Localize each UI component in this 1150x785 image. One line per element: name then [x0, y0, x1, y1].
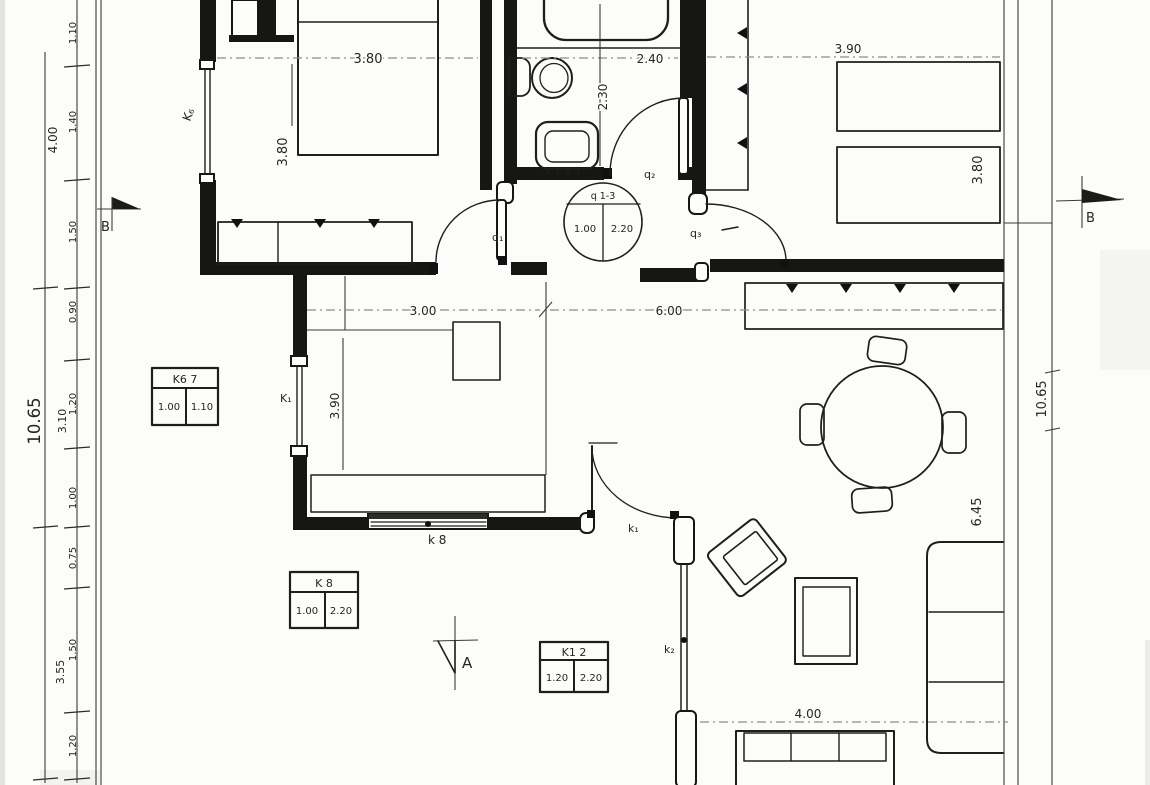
dim-label: 1.20 — [68, 735, 79, 757]
window-k6 — [200, 60, 214, 183]
table-width: 1.20 — [546, 673, 568, 684]
section-flag — [112, 197, 140, 209]
bathroom-width: 2.40 — [637, 52, 664, 66]
bathroom-height: 2.30 — [596, 84, 610, 111]
left-dimension-lines: 1.10 1.40 1.50 0.90 1.20 1.00 0.75 1.50 … — [25, 0, 141, 785]
section-flag — [1082, 189, 1122, 203]
section-letter: B — [101, 220, 110, 235]
sofa-wall-dim: 4.00 — [795, 707, 822, 721]
bedroom2-height: 3.80 — [971, 156, 986, 185]
wall-stub-top — [229, 0, 294, 42]
door-schedule-header: q 1-3 — [591, 191, 616, 202]
section-letter: A — [462, 654, 473, 672]
kitchen: K₁ k 8 3.90 — [280, 276, 594, 547]
door-schedule-height: 2.20 — [611, 224, 633, 235]
appliance — [453, 322, 500, 380]
dim-label: 1.00 — [68, 487, 79, 509]
bed-2a — [837, 62, 1000, 131]
window-k8: k 8 — [368, 514, 488, 547]
schedule-table-k8: K 8 1.00 2.20 — [290, 572, 358, 628]
floor-plan-sheet: 1.10 1.40 1.50 0.90 1.20 1.00 0.75 1.50 … — [0, 0, 1150, 785]
door-k1-swing — [592, 447, 678, 518]
door-k1-label: k₁ — [628, 522, 639, 535]
section-marker-b-left: B — [97, 197, 141, 235]
bedroom-1: K₆ 3.80 3.80 q₁ — [180, 0, 513, 274]
sofa-right-wall — [927, 542, 1003, 753]
left-chain-labels: 1.10 1.40 1.50 0.90 1.20 1.00 0.75 1.50 … — [25, 22, 79, 757]
window-k2: k₂ — [664, 564, 687, 711]
chair — [851, 487, 893, 514]
kitchen-height: 3.90 — [328, 393, 342, 420]
section-letter: B — [1086, 211, 1095, 226]
dim-label: 1.50 — [68, 639, 79, 661]
door-q3-label: q₃ — [690, 227, 701, 240]
dim-subtotal: 3.10 — [56, 409, 69, 434]
living-width: 6.00 — [656, 304, 683, 318]
balcony-opening: k₁ k₂ — [587, 443, 696, 785]
door-q2: q₂ — [603, 98, 688, 181]
walls — [200, 0, 1004, 530]
table-height: 1.10 — [191, 402, 213, 413]
bathroom: 2.40 2.30 q₂ — [509, 0, 688, 181]
dim-label: 1.40 — [68, 111, 79, 133]
bedroom-2: 3.90 3.80 — [706, 0, 1000, 223]
wardrobe-2 — [706, 0, 748, 190]
window-k8-label: k 8 — [428, 533, 446, 547]
living-room: 3.00 6.00 4.00 6.45 — [307, 283, 1008, 785]
window-k2-label: k₂ — [664, 643, 675, 656]
right-dimension-lines: 10.65 B — [1004, 0, 1124, 785]
door-schedule-width: 1.00 — [574, 224, 596, 235]
dim-subtotal: 3.55 — [54, 660, 67, 685]
dim-subtotal: 4.00 — [46, 127, 60, 154]
floor-plan-drawing: 1.10 1.40 1.50 0.90 1.20 1.00 0.75 1.50 … — [0, 0, 1150, 785]
sofa-bottom — [736, 731, 894, 785]
counter — [311, 475, 545, 512]
section-flag — [438, 641, 455, 673]
bedroom1-width: 3.80 — [354, 52, 383, 67]
closet-row — [745, 283, 1003, 329]
armchair — [706, 517, 788, 598]
schedule-table-k67: K6 7 1.00 1.10 — [152, 368, 218, 425]
dining-table — [800, 335, 966, 513]
living-height: 6.45 — [970, 498, 985, 527]
dim-label: 0.75 — [68, 547, 79, 569]
table-height: 2.20 — [330, 606, 352, 617]
kitchen-width: 3.00 — [410, 304, 437, 318]
bed — [298, 0, 438, 155]
table-width: 1.00 — [158, 402, 180, 413]
window-k1-label: K₁ — [280, 392, 292, 405]
dim-label: 1.10 — [68, 22, 79, 44]
door-schedule-circle: q 1-3 1.00 2.20 — [564, 183, 642, 261]
door-q1-label: q₁ — [492, 231, 503, 244]
table-header: K6 7 — [173, 373, 198, 386]
window-k1: K₁ — [280, 356, 307, 456]
bedroom1-height: 3.80 — [276, 138, 291, 167]
coffee-table — [795, 578, 857, 664]
dim-total-left: 10.65 — [25, 397, 44, 444]
wardrobe — [218, 219, 412, 264]
table-height: 2.20 — [580, 673, 602, 684]
dim-label: 1.20 — [68, 393, 79, 415]
chair — [942, 412, 966, 453]
dim-label: 1.50 — [68, 221, 79, 243]
dim-total-right: 10.65 — [1035, 380, 1050, 417]
toilet — [509, 58, 572, 98]
bathtub — [544, 0, 668, 40]
chair — [867, 335, 908, 365]
table-width: 1.00 — [296, 606, 318, 617]
door-q2-label: q₂ — [644, 168, 655, 181]
door-q1: q₁ — [429, 182, 513, 274]
window-k6-label: K₆ — [180, 106, 198, 123]
schedule-table-k12: K1 2 1.20 2.20 — [540, 642, 608, 692]
table-header: K 8 — [315, 577, 333, 590]
section-marker-b-right: B — [1004, 176, 1124, 228]
table-header: K1 2 — [562, 646, 587, 659]
dim-label: 0.90 — [68, 301, 79, 323]
bedroom2-width: 3.90 — [835, 42, 862, 56]
section-marker-a: A — [433, 616, 478, 690]
